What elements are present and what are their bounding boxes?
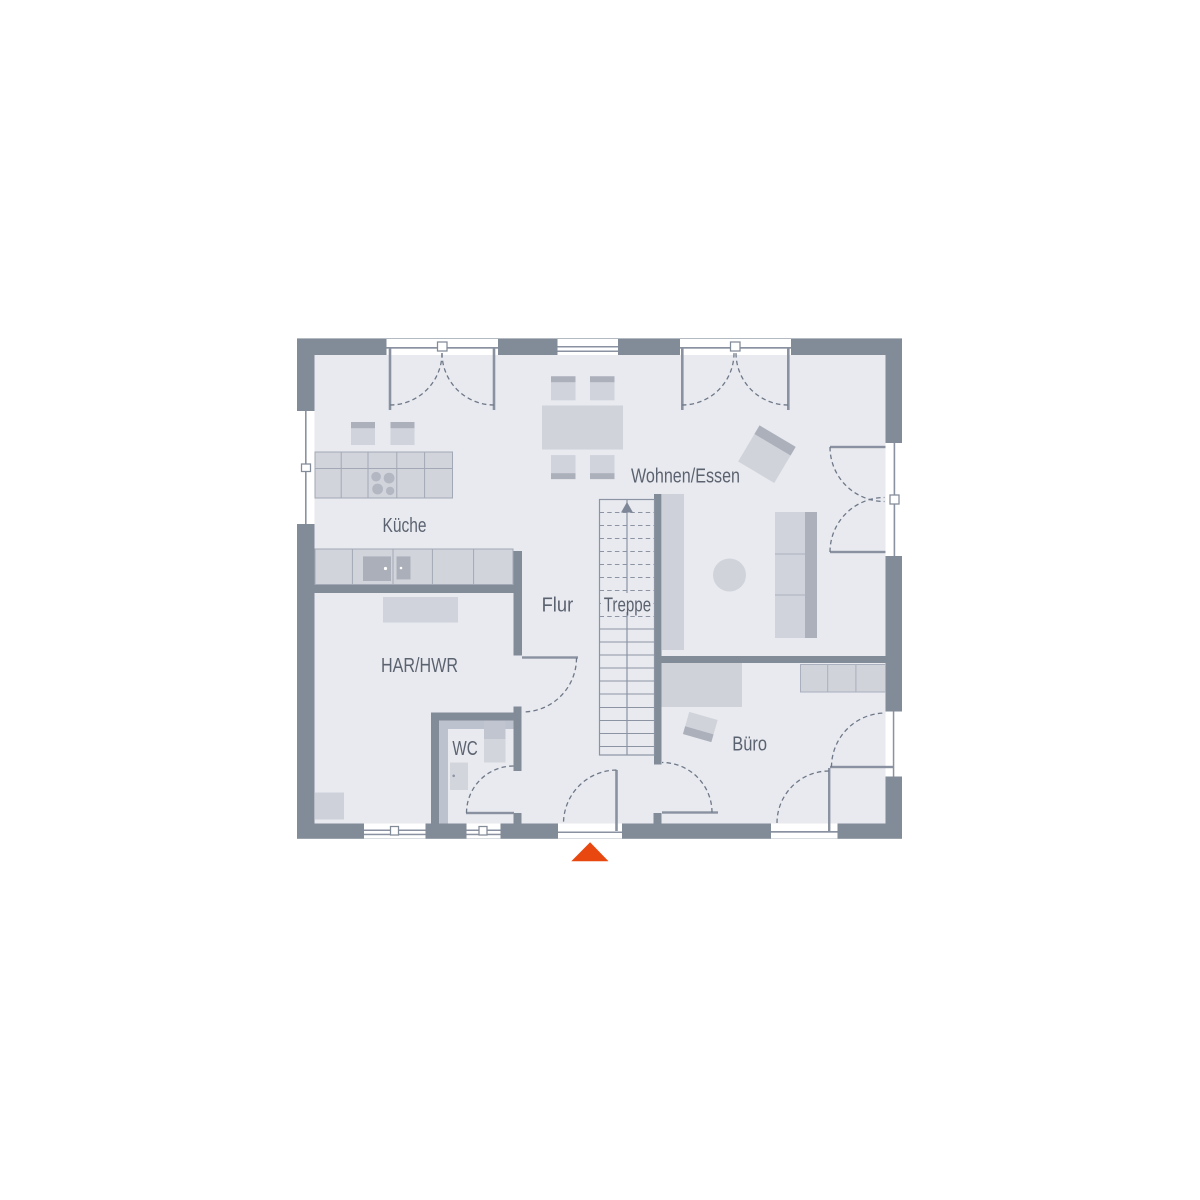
svg-text:HAR/HWR: HAR/HWR	[381, 655, 458, 677]
svg-text:Küche: Küche	[383, 515, 427, 537]
svg-text:Flur: Flur	[542, 595, 574, 617]
svg-text:WC: WC	[452, 738, 477, 760]
svg-text:Treppe: Treppe	[604, 595, 652, 617]
svg-text:Wohnen/Essen: Wohnen/Essen	[631, 465, 740, 487]
svg-text:Büro: Büro	[732, 734, 767, 756]
